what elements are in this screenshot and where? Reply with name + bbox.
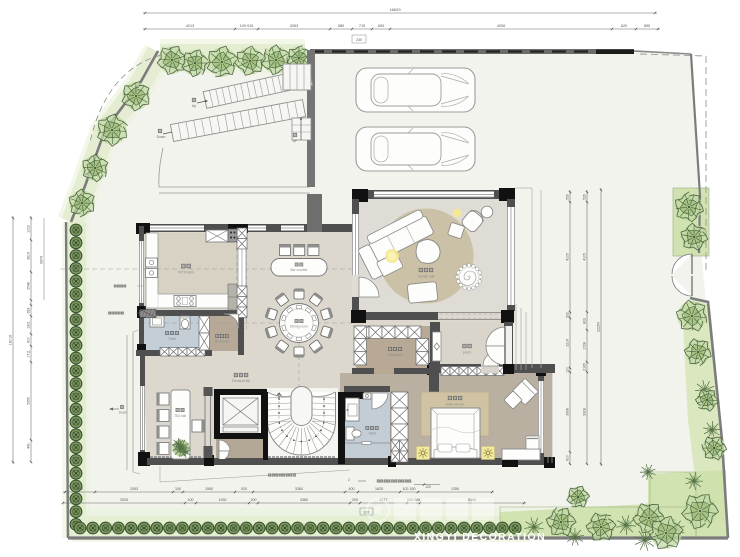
svg-text:storeroom: storeroom: [215, 340, 230, 344]
svg-text:520: 520: [241, 487, 247, 491]
svg-text:102 150: 102 150: [403, 487, 416, 491]
svg-text:6974: 6974: [39, 256, 43, 264]
svg-text:693: 693: [26, 308, 30, 314]
svg-text:Family hall: Family hall: [418, 275, 434, 279]
svg-text:2214: 2214: [565, 339, 569, 347]
svg-text:Bar counter: Bar counter: [290, 268, 308, 272]
svg-text:2548: 2548: [26, 282, 30, 290]
svg-text:600: 600: [565, 455, 569, 461]
svg-text:100: 100: [188, 498, 194, 502]
svg-text:4105: 4105: [565, 253, 569, 261]
svg-text:1930: 1930: [219, 498, 227, 502]
svg-text:3958: 3958: [565, 408, 569, 416]
svg-text:2165: 2165: [582, 363, 586, 371]
svg-text:5955: 5955: [26, 397, 30, 405]
svg-text:Elder Room: Elder Room: [446, 403, 464, 407]
svg-text:1728: 1728: [582, 342, 586, 350]
svg-text:620: 620: [621, 24, 627, 28]
svg-text:3325: 3325: [120, 498, 128, 502]
svg-text:1711: 1711: [26, 350, 30, 357]
svg-text:1023: 1023: [26, 225, 30, 233]
svg-text:3328: 3328: [582, 408, 586, 416]
svg-text:Up: Up: [192, 104, 196, 108]
svg-text:4213: 4213: [186, 24, 194, 28]
svg-text:400: 400: [349, 487, 355, 491]
svg-text:1921: 1921: [26, 321, 30, 329]
svg-text:KITCHEN: KITCHEN: [178, 271, 194, 275]
svg-text:800: 800: [26, 337, 30, 343]
svg-text:895: 895: [644, 24, 650, 28]
svg-text:100: 100: [565, 367, 569, 373]
svg-text:1625: 1625: [375, 487, 383, 491]
svg-text:100: 100: [175, 487, 181, 491]
svg-text:3360: 3360: [295, 487, 303, 491]
svg-text:3360: 3360: [300, 498, 308, 502]
svg-text:XINGYI DECORATION: XINGYI DECORATION: [414, 531, 546, 543]
svg-text:Down: Down: [157, 135, 166, 139]
svg-text:4105: 4105: [582, 253, 586, 261]
svg-text:109 915: 109 915: [240, 24, 254, 28]
svg-text:1359: 1359: [451, 487, 459, 491]
svg-text:823: 823: [582, 318, 586, 324]
svg-text:4206: 4206: [497, 24, 505, 28]
svg-text:Cloakroom: Cloakroom: [387, 353, 403, 357]
svg-text:715: 715: [359, 24, 365, 28]
svg-text:200: 200: [251, 498, 257, 502]
svg-text:2: 2: [348, 478, 350, 482]
svg-text:240: 240: [356, 38, 362, 42]
svg-text:Toilet: Toilet: [168, 337, 176, 341]
svg-text:ElevatorHall: ElevatorHall: [232, 379, 250, 383]
svg-text:535: 535: [565, 194, 569, 200]
svg-text:Toilet: Toilet: [368, 432, 376, 436]
svg-text:3614: 3614: [26, 252, 30, 260]
svg-text:1550: 1550: [205, 487, 213, 491]
svg-text:TEA hall: TEA hall: [174, 414, 186, 418]
svg-text:600: 600: [378, 24, 384, 28]
svg-text:16629: 16629: [389, 7, 401, 12]
svg-text:porch: porch: [463, 351, 472, 355]
svg-text:Dining room: Dining room: [290, 325, 308, 329]
svg-text:3263: 3263: [290, 24, 298, 28]
svg-text:562: 562: [77, 487, 83, 491]
svg-text:2053: 2053: [130, 487, 138, 491]
svg-text:580: 580: [338, 24, 344, 28]
svg-text:535: 535: [582, 194, 586, 200]
svg-text:12254: 12254: [596, 322, 600, 332]
svg-text:16710: 16710: [8, 335, 12, 346]
svg-text:200: 200: [352, 498, 358, 502]
svg-text:UP: UP: [293, 139, 298, 143]
svg-text:440: 440: [26, 443, 30, 449]
svg-text:120: 120: [425, 485, 431, 489]
svg-text:Down: Down: [119, 411, 127, 415]
